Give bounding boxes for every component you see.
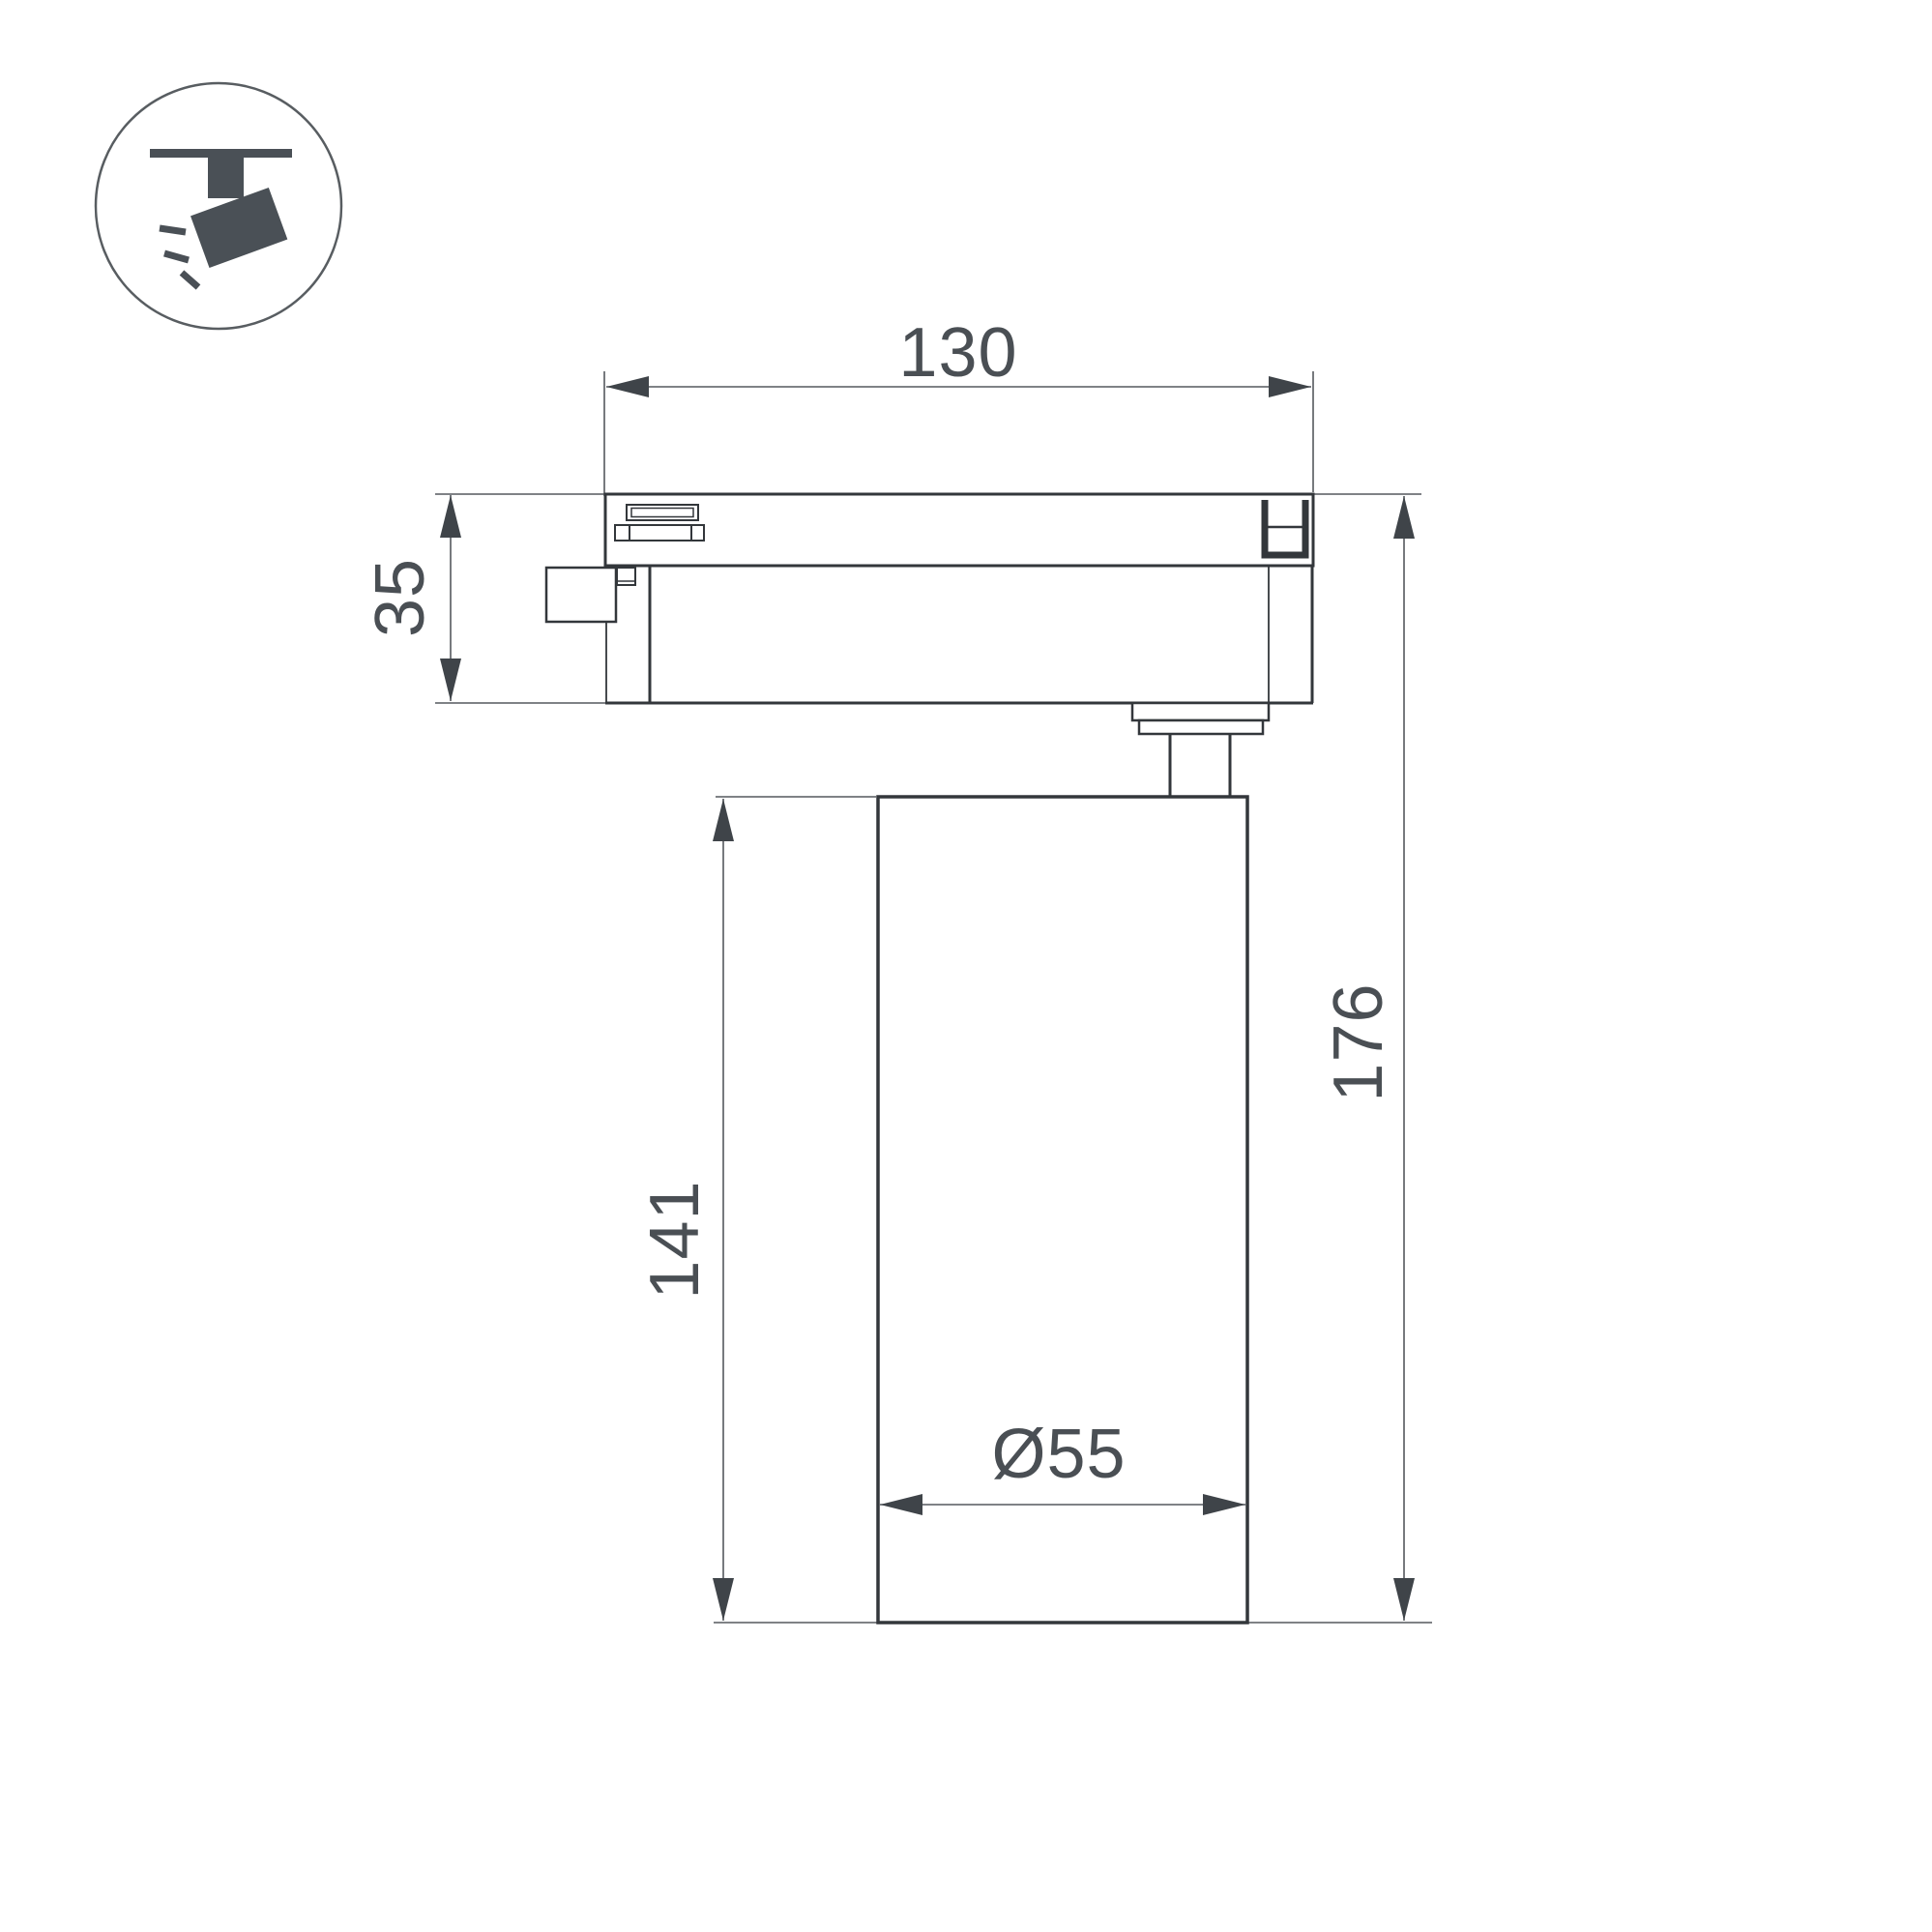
icon-ray-1 (160, 228, 186, 232)
dimension-body-height: 141 (636, 799, 734, 1621)
arrow-130-left (606, 376, 649, 397)
arrow-35-top (440, 495, 461, 538)
swivel-neck (1132, 703, 1269, 797)
lamp-cylinder-body (878, 797, 1247, 1623)
adapter-lower-body (546, 566, 1313, 703)
arrow-130-right (1269, 376, 1311, 397)
lock-hook-detail (617, 568, 635, 585)
icon-ray-3 (182, 273, 198, 287)
technical-drawing-svg: 130 35 141 176 Ø55 (0, 0, 1932, 1932)
icon-light-rays (160, 228, 198, 287)
arrow-35-bottom (440, 659, 461, 701)
track-adapter (546, 494, 1313, 797)
icon-lamp-head (190, 188, 287, 268)
dimension-track-width: 130 (606, 314, 1311, 397)
icon-mount-stem (208, 156, 244, 198)
dim-label-55: Ø55 (991, 1416, 1126, 1493)
track-spotlight-icon (96, 83, 341, 329)
dim-label-130: 130 (898, 314, 1017, 392)
lock-lever-box (546, 568, 616, 622)
arrow-176-bottom (1393, 1578, 1415, 1621)
dim-label-35: 35 (362, 558, 439, 637)
neck-flange-lower (1139, 720, 1263, 734)
dimension-total-height: 176 (1320, 496, 1415, 1621)
dimension-adapter-height: 35 (362, 495, 461, 701)
arrow-141-bottom (713, 1578, 734, 1621)
adapter-upper-body (605, 494, 1313, 566)
arrow-141-top (713, 799, 734, 841)
arrow-176-top (1393, 496, 1415, 539)
dim-label-176: 176 (1320, 982, 1397, 1101)
dim-label-141: 141 (636, 1180, 714, 1299)
neck-flange-upper (1132, 703, 1269, 720)
icon-ray-2 (164, 253, 189, 260)
drawing-canvas: 130 35 141 176 Ø55 (0, 0, 1932, 1932)
